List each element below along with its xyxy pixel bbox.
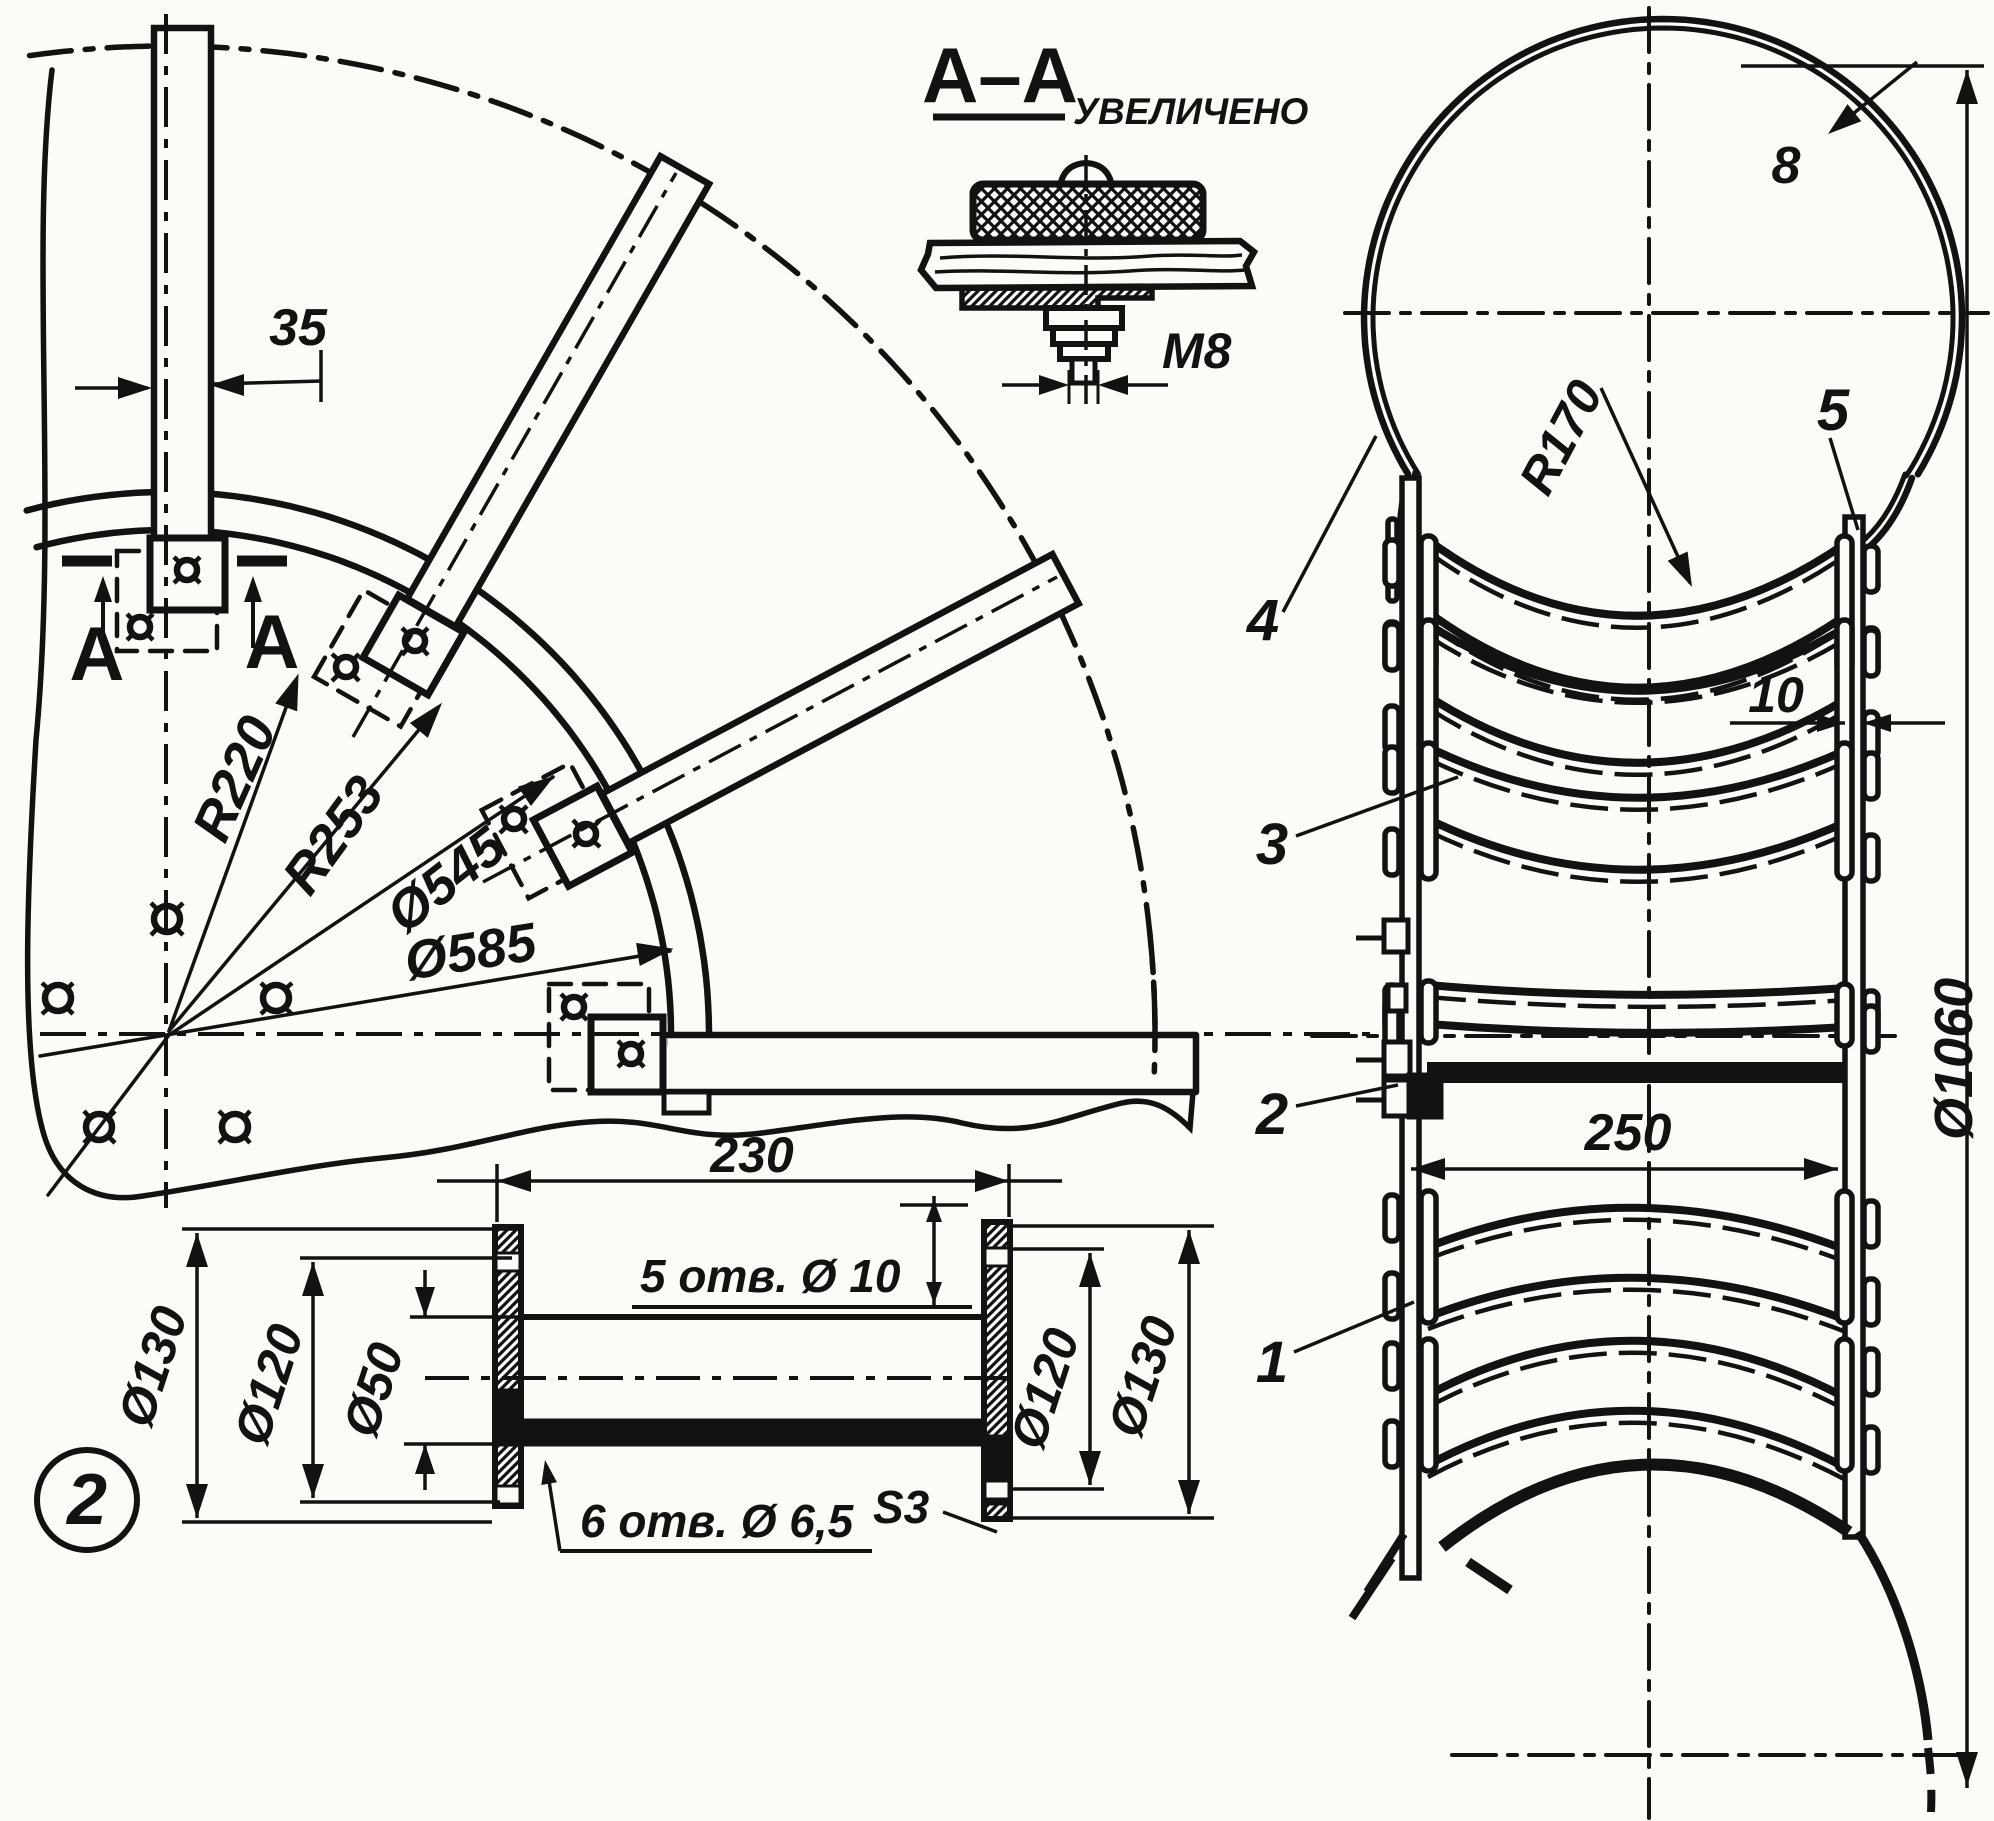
svg-text:5 отв. Ø 10: 5 отв. Ø 10 (640, 1250, 901, 1302)
svg-text:Ø1060: Ø1060 (1924, 978, 1984, 1140)
svg-text:4: 4 (1246, 588, 1279, 653)
svg-text:2: 2 (1255, 1082, 1288, 1147)
svg-text:S3: S3 (873, 1481, 930, 1533)
svg-text:10: 10 (1748, 667, 1804, 723)
svg-text:250: 250 (1584, 1104, 1672, 1162)
svg-text:1: 1 (1256, 1330, 1288, 1395)
svg-text:230: 230 (709, 1127, 794, 1183)
svg-text:УВЕЛИЧЕНО: УВЕЛИЧЕНО (1073, 91, 1309, 132)
svg-text:3: 3 (1256, 812, 1288, 877)
svg-text:А: А (245, 600, 300, 685)
svg-text:5: 5 (1817, 378, 1850, 443)
svg-text:А: А (70, 612, 125, 697)
svg-text:35: 35 (269, 299, 328, 357)
svg-text:М8: М8 (1162, 323, 1232, 379)
svg-text:2: 2 (65, 1460, 107, 1540)
svg-text:8: 8 (1772, 137, 1801, 195)
svg-text:А–А: А–А (922, 31, 1078, 119)
svg-text:6 отв. Ø 6,5: 6 отв. Ø 6,5 (580, 1495, 855, 1547)
